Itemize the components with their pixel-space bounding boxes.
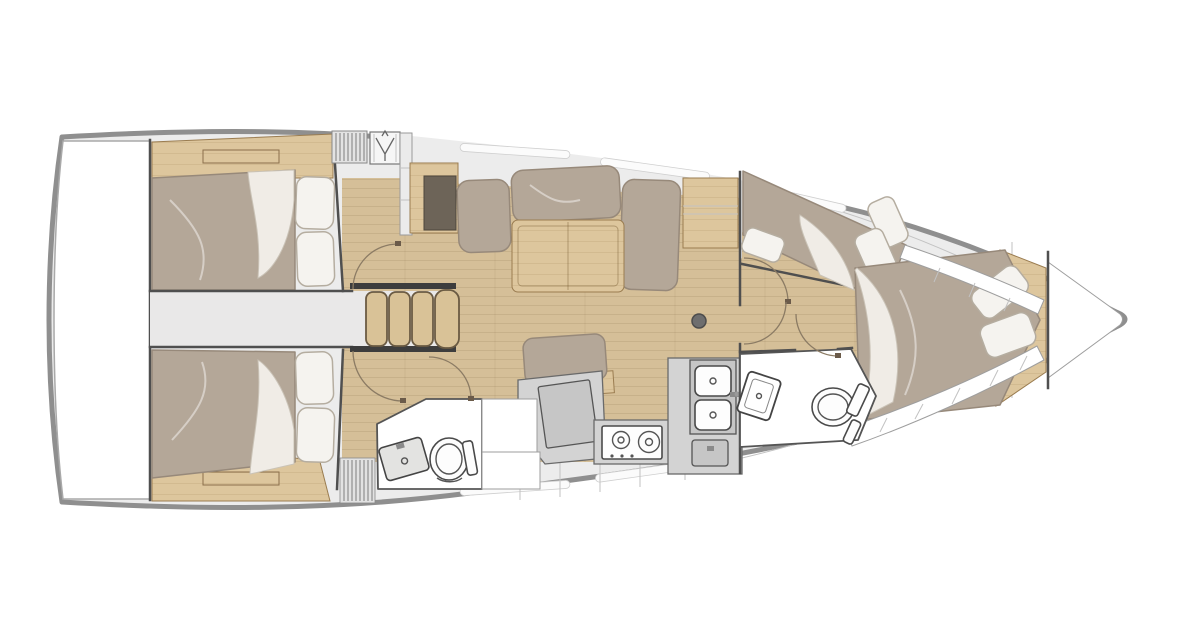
aft-cabin-starboard — [152, 350, 335, 501]
sink-bowl — [695, 366, 731, 396]
cockpit-locker-hatch — [332, 131, 367, 163]
swim-platform — [54, 140, 150, 500]
aft-cabin-port — [152, 134, 335, 290]
engine-vent-hatch — [340, 458, 375, 503]
toilet — [430, 438, 478, 482]
sink-bowl — [695, 400, 731, 430]
salon-sideboard — [683, 178, 738, 248]
galley-locker — [692, 440, 728, 466]
hanging-locker — [370, 131, 400, 164]
mast-post — [692, 314, 706, 328]
cabinet-inset — [424, 176, 456, 230]
forward-cabin — [846, 245, 1046, 446]
floorplan-canvas — [0, 0, 1200, 634]
forward-head — [736, 349, 876, 447]
aft-head — [377, 399, 540, 489]
